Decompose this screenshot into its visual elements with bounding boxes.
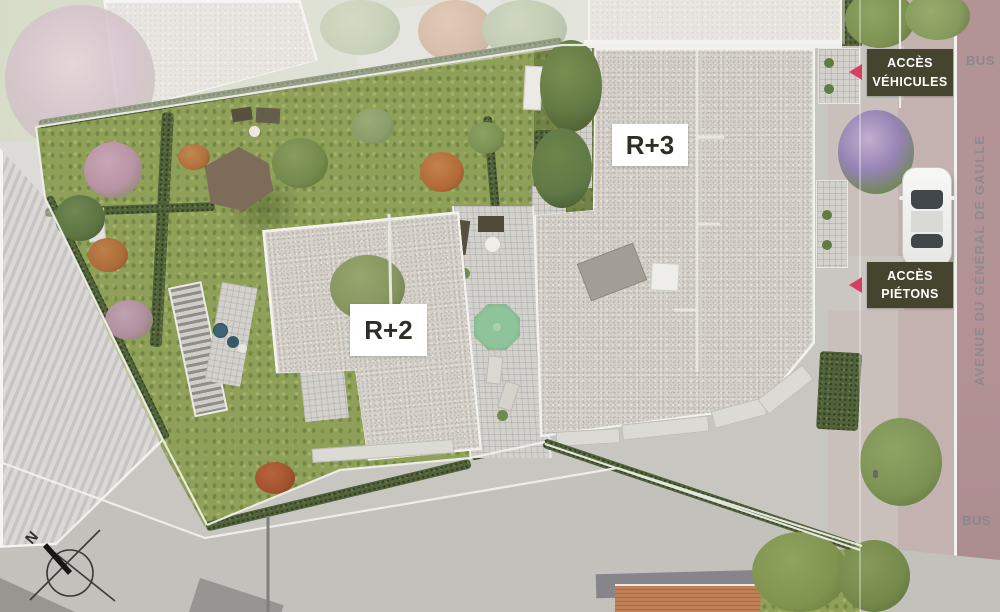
road-lane-line [954, 0, 957, 612]
access-vehicles-line2: VÉHICULES [867, 73, 953, 91]
lounge-chair [486, 355, 504, 384]
tree [55, 195, 105, 241]
planter-pot [822, 240, 832, 250]
access-pedestrians-line2: PIÉTONS [867, 285, 953, 303]
tree [540, 40, 602, 132]
access-vehicles-arrow-icon [849, 64, 862, 80]
planter-pot [824, 58, 834, 68]
tree [352, 108, 394, 144]
roof-gap-walkway [584, 40, 842, 48]
rooflight [650, 262, 679, 291]
access-pedestrians-label: ACCÈS PIÉTONS [867, 262, 953, 308]
tree [320, 0, 400, 55]
car-mirror [899, 196, 906, 200]
compass: N [18, 522, 128, 612]
planter-pot [497, 410, 508, 421]
terrace [816, 180, 848, 268]
terrace-table [478, 216, 504, 232]
access-vehicles-line1: ACCÈS [867, 54, 953, 72]
access-vehicles-label: ACCÈS VÉHICULES [867, 49, 953, 96]
bus-label-top: BUS [966, 53, 995, 68]
tree [178, 144, 210, 170]
tree [255, 462, 295, 494]
car-windshield [911, 190, 943, 209]
street-name: AVENUE DU GÉNÉRAL DE GAULLE [972, 108, 987, 413]
pedestrian [873, 470, 878, 478]
tiled-roof [615, 584, 765, 612]
flowering-tree [84, 142, 142, 198]
planter-pot [824, 84, 834, 94]
car-roof [911, 211, 943, 232]
round-table [484, 236, 501, 253]
garden-table [231, 107, 253, 123]
tree [532, 128, 592, 208]
building-label-r3-text: R+3 [626, 130, 674, 161]
access-pedestrians-line1: ACCÈS [867, 267, 953, 285]
tree [420, 152, 464, 192]
car-rear-window [911, 234, 943, 248]
hedge [816, 351, 862, 431]
waste-bin [227, 336, 239, 348]
compass-north-label: N [22, 528, 42, 547]
building-label-r3: R+3 [612, 124, 688, 166]
round-table [238, 344, 247, 353]
garden-table [256, 107, 281, 123]
tree [860, 418, 942, 506]
car-mirror [948, 196, 955, 200]
access-pedestrians-arrow-icon [849, 277, 862, 293]
tree [468, 122, 504, 154]
round-table [249, 126, 260, 137]
waste-bin [213, 323, 228, 338]
tree [88, 238, 128, 272]
bus-label-bottom: BUS [962, 513, 991, 528]
flowering-tree [105, 300, 153, 340]
building-label-r2: R+2 [350, 304, 427, 356]
planter-pot [822, 210, 832, 220]
building-label-r2-text: R+2 [364, 315, 412, 346]
tree [272, 138, 328, 188]
tree [752, 532, 847, 612]
tree [838, 540, 910, 612]
parked-car [903, 168, 951, 266]
site-plan: N R+3 R+2 ACCÈS VÉHICULES ACCÈS PIÉTONS … [0, 0, 1000, 612]
building-r3-upper-roof [588, 0, 842, 42]
